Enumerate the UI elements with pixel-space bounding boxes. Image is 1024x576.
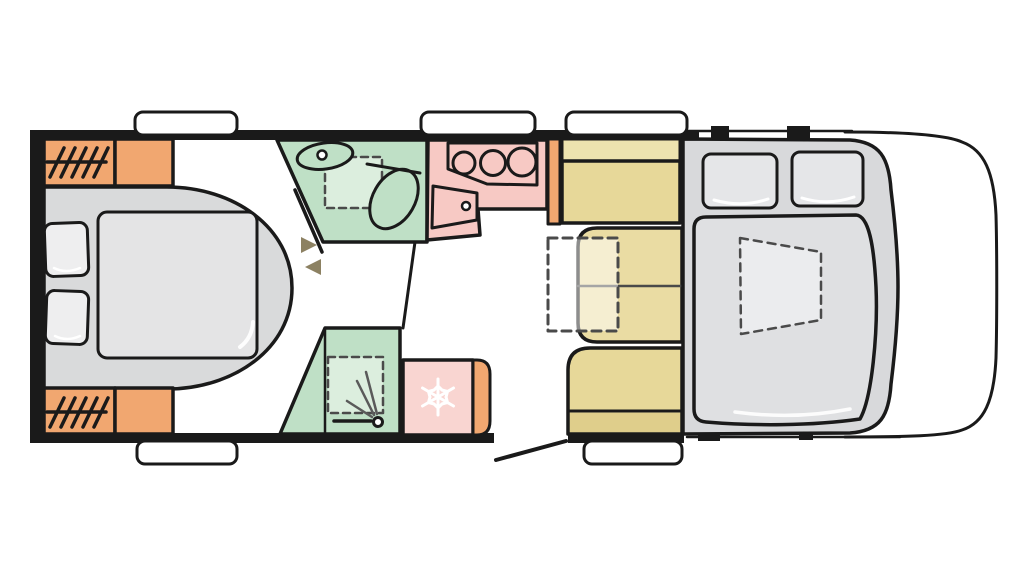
window-bottom-dinette xyxy=(584,441,682,464)
rear-bed-pillow-top xyxy=(44,222,89,276)
corridor-partition-line xyxy=(403,242,415,328)
window-top-kitchen xyxy=(421,112,535,135)
motorhome-floorplan xyxy=(0,0,1024,576)
fridge-end-panel xyxy=(473,360,490,435)
shower-cubicle xyxy=(280,328,400,434)
roof-skylight xyxy=(740,238,821,334)
hob-burner-large xyxy=(508,148,536,176)
tap-icon xyxy=(318,151,327,160)
window-bottom-rear xyxy=(137,441,237,464)
rear-bedroom xyxy=(44,139,292,434)
wall-pillar-top-right xyxy=(787,126,810,139)
window-top-dinette xyxy=(566,112,687,135)
rear-bed-pillow-bottom xyxy=(45,290,89,344)
washroom xyxy=(277,139,428,328)
dinette xyxy=(548,139,682,434)
kitchen xyxy=(427,139,560,240)
swivel-arrow-right xyxy=(301,237,317,253)
fridge-freezer xyxy=(403,360,490,435)
folding-table xyxy=(548,238,618,331)
entry-door-line xyxy=(496,441,566,460)
rear-bed-mattress xyxy=(98,212,257,358)
cabinet-knob-icon xyxy=(462,202,470,210)
wall-pillar-top-left xyxy=(711,126,729,139)
wall-rear xyxy=(30,130,44,443)
cabinet-top xyxy=(115,139,173,186)
cab-drop-down-bed xyxy=(683,139,898,434)
shower-head-icon xyxy=(374,418,383,427)
swivel-arrow-left xyxy=(305,259,321,275)
dinette-backrest-top xyxy=(562,139,680,161)
hob-burner-medium xyxy=(481,151,506,176)
hob-burner-small xyxy=(453,152,475,174)
cabinet-bottom xyxy=(115,388,173,434)
floorplan-stage xyxy=(0,0,1024,576)
dinette-bench-top xyxy=(562,161,680,223)
kitchen-end-panel xyxy=(548,139,560,224)
window-top-rear xyxy=(135,112,237,135)
dinette-backrest-bottom xyxy=(570,413,680,432)
